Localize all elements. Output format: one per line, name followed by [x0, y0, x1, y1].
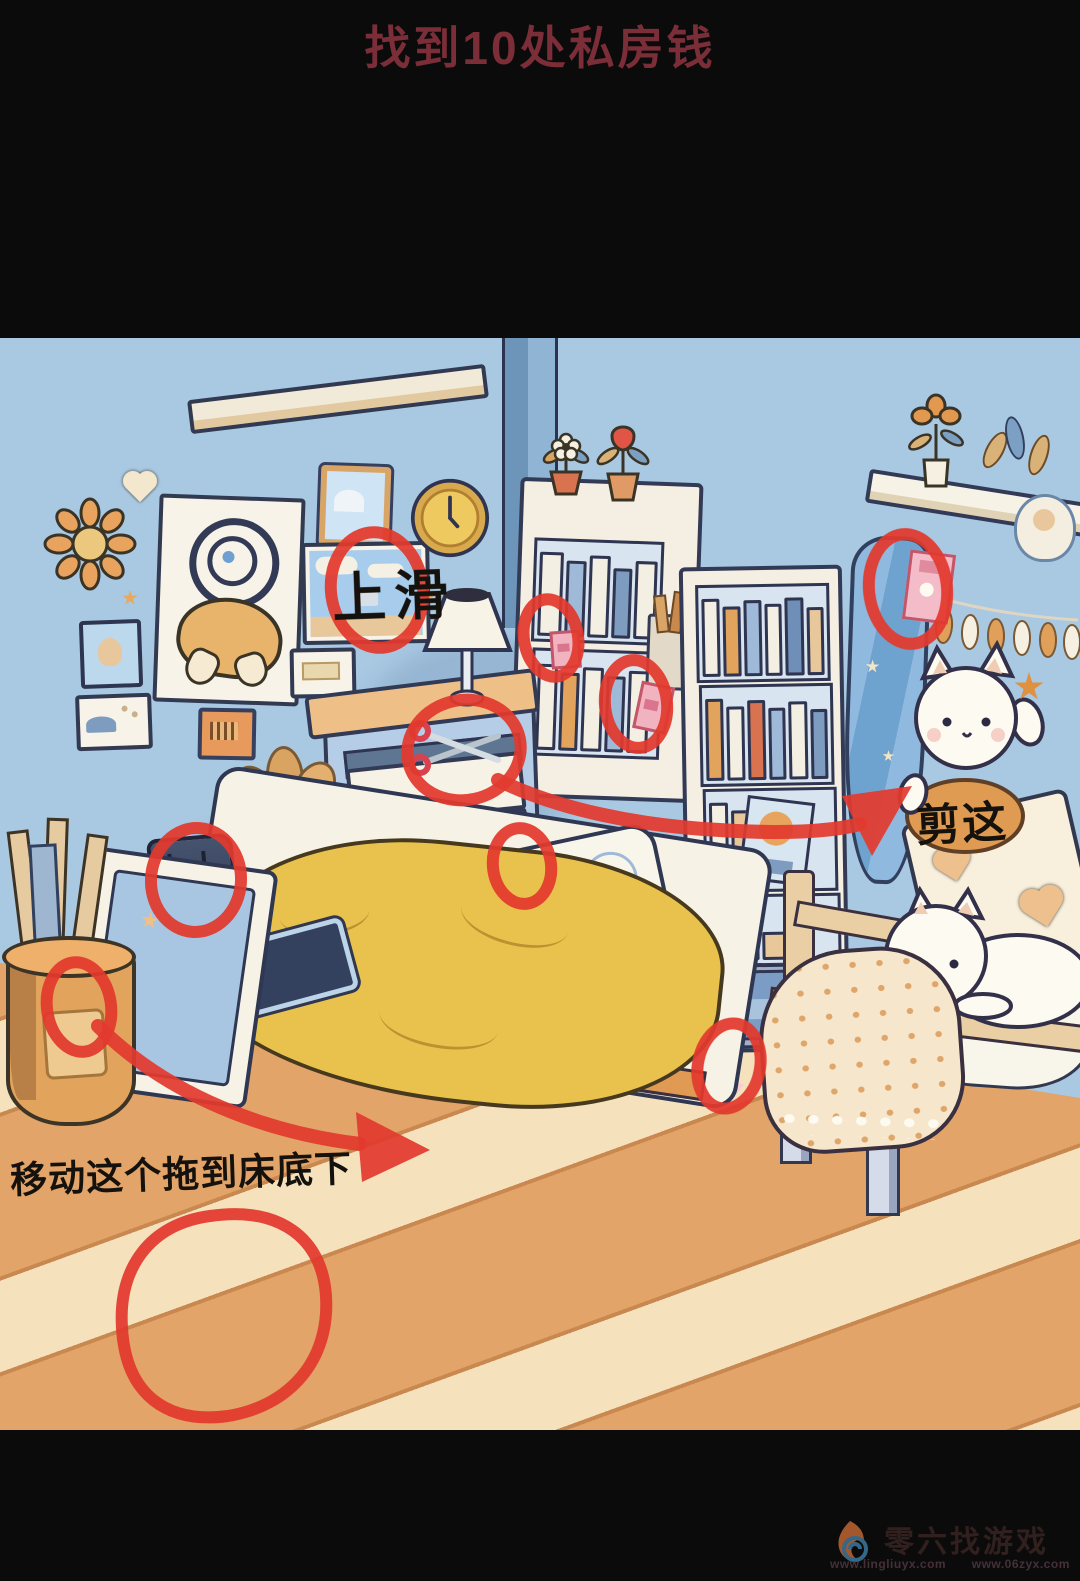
room-scene: 上滑 剪这 移动这个拖到床底下 [0, 338, 1080, 1430]
screenshot-root: 找到10处私房钱 [0, 0, 1080, 1581]
hidden-spot-circle-under-shelf[interactable] [690, 1017, 769, 1114]
watermark-url-right: www.06zyx.com [972, 1557, 1070, 1571]
hidden-spot-circle-pillow[interactable] [488, 824, 556, 907]
arrow-to-cut-target [498, 780, 860, 832]
arrow-to-under-bed [98, 1026, 360, 1144]
label-swipe-up: 上滑 [331, 550, 458, 633]
top-letterbox-bar: 找到10处私房钱 [0, 0, 1080, 338]
hidden-spot-circle-side-envelope[interactable] [601, 657, 672, 751]
hidden-spot-circle-speaker[interactable] [147, 825, 244, 935]
hidden-spot-circle-books[interactable] [518, 595, 585, 681]
watermark: 零六找游戏 www.lingliuyx.com www.06zyx.com [826, 1517, 1076, 1577]
watermark-name: 零六找游戏 [884, 1517, 1049, 1561]
hidden-spot-circle-towel[interactable] [863, 530, 952, 648]
arrowhead [356, 1112, 430, 1182]
label-cut-this: 剪这 [914, 786, 1009, 855]
bottom-letterbox-bar: 零六找游戏 www.lingliuyx.com www.06zyx.com [0, 1430, 1080, 1581]
page-title: 找到10处私房钱 [0, 12, 1080, 78]
annotation-overlay [0, 338, 1080, 1430]
watermark-url-left: www.lingliuyx.com [830, 1557, 946, 1571]
hidden-spot-circle-floorboard[interactable] [122, 1214, 327, 1417]
watermark-urls: www.lingliuyx.com www.06zyx.com [830, 1557, 1076, 1571]
